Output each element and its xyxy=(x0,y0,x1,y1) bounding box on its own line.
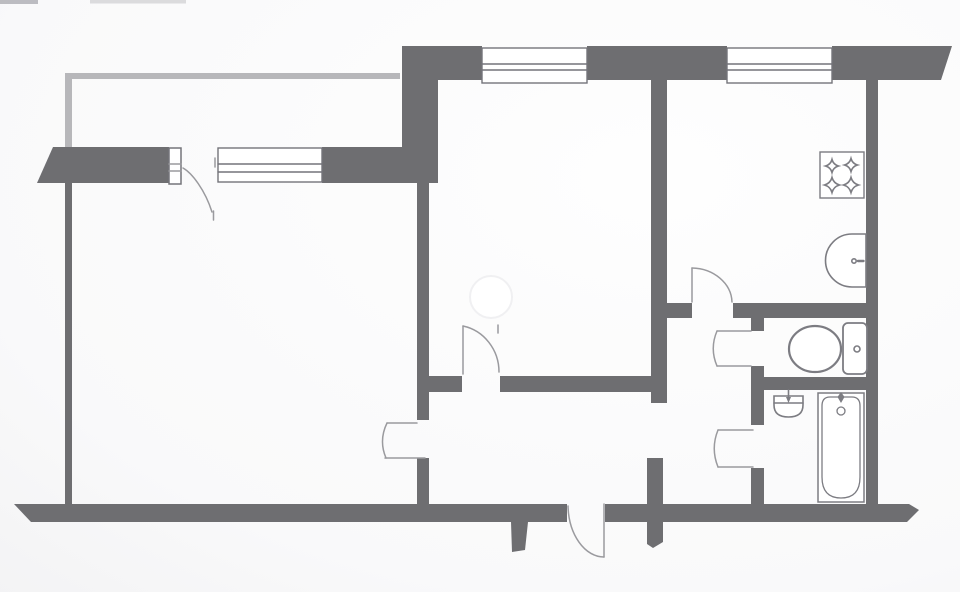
bedroom-door xyxy=(463,325,499,374)
wall-bottom-left-broken-end xyxy=(14,504,567,522)
stove xyxy=(820,152,864,198)
bedroom-window-part-0 xyxy=(482,48,587,83)
bathroom-door-part-2 xyxy=(714,430,718,467)
floor-plan-screenshot xyxy=(0,0,960,592)
wall-outer-right xyxy=(866,80,878,504)
toilet xyxy=(789,323,867,374)
wall-kitchen-bottom-right xyxy=(733,303,878,318)
toilet-part-1 xyxy=(843,323,867,374)
wall-living-top-right xyxy=(322,147,438,183)
balcony-door xyxy=(169,148,215,220)
wall-wc-left-top-stub xyxy=(751,318,764,331)
watermark-layer xyxy=(470,276,512,318)
toilet-part-0 xyxy=(789,326,841,372)
kitchen-sink xyxy=(826,234,867,287)
wall-bath-left-top-stub xyxy=(751,390,764,425)
wall-top-a xyxy=(438,46,482,80)
wall-entrance-stub xyxy=(511,522,528,552)
bedroom-window xyxy=(482,48,587,83)
scan-smudge-top-left xyxy=(0,0,38,4)
living-room-door xyxy=(382,423,425,458)
wall-wc-left-bottom-stub xyxy=(751,366,764,378)
bathtub-part-0 xyxy=(818,393,864,502)
balcony-railing xyxy=(65,73,400,150)
bathroom-door xyxy=(714,430,753,467)
entrance-door-part-1 xyxy=(568,506,604,557)
scan-streak-top xyxy=(90,0,186,4)
wc-door-part-2 xyxy=(713,331,717,366)
wall-bedroom-left-stub xyxy=(417,458,429,506)
wall-bedroom-bottom-left xyxy=(429,376,462,392)
kitchen-door-part-1 xyxy=(692,268,732,302)
windows-layer xyxy=(218,48,832,182)
living-room-door-part-2 xyxy=(382,423,387,458)
balcony-door-part-0 xyxy=(169,148,181,184)
wall-kitchen-bottom-left xyxy=(651,303,692,318)
bathroom-sink xyxy=(774,390,803,417)
wall-living-top-left-broken-end xyxy=(37,147,169,183)
balcony-layer xyxy=(65,73,400,150)
fixtures-layer xyxy=(774,152,867,502)
floor-plan-svg xyxy=(0,0,960,592)
stove-part-0 xyxy=(820,152,864,198)
wall-outer-left xyxy=(65,147,72,522)
wall-bedroom-bottom-right xyxy=(500,376,652,392)
wall-bedroom-left xyxy=(417,182,429,420)
scan-artifacts-layer xyxy=(0,0,186,4)
watermark-circle xyxy=(470,276,512,318)
living-room-window xyxy=(218,148,322,182)
bedroom-door-part-2 xyxy=(463,326,499,372)
wall-wc-bath-divider xyxy=(751,377,878,390)
kitchen-window xyxy=(727,48,832,83)
wall-bath-left-bottom-stub xyxy=(751,468,764,504)
balcony-door-part-3 xyxy=(183,168,212,212)
wall-center-column xyxy=(651,60,667,403)
wall-top-right-broken-end xyxy=(832,46,952,80)
kitchen-window-part-0 xyxy=(727,48,832,83)
living-room-window-part-0 xyxy=(218,148,322,182)
wc-door xyxy=(713,331,751,366)
wall-corridor-cross-stub xyxy=(647,458,663,548)
bathtub xyxy=(818,392,864,502)
entrance-door xyxy=(568,504,604,557)
kitchen-door xyxy=(692,268,732,302)
